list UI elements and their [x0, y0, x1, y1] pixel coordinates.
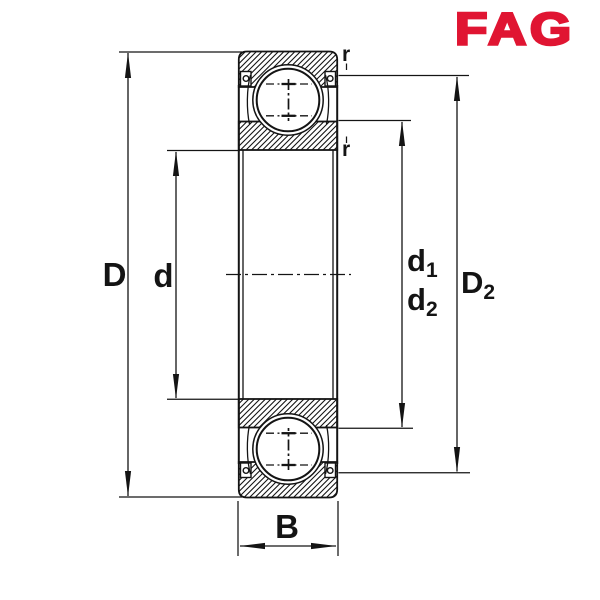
arrow-left-icon: [240, 543, 266, 549]
dim-d1-d2: d1 d2: [339, 121, 438, 429]
arrow-down-icon: [125, 471, 131, 497]
radius-labels: r r: [342, 43, 350, 161]
dim-d2-label: d2: [407, 282, 438, 321]
arrow-down-icon: [173, 374, 179, 399]
dim-d-label: d: [153, 257, 173, 294]
dim-D2-label: D2: [461, 265, 495, 304]
arrow-up-icon: [173, 151, 179, 176]
dim-D-label: D: [103, 256, 127, 293]
bearing-cross-section-diagram: D d d1 d2 D2: [0, 0, 600, 600]
dim-width-B: B: [238, 501, 338, 556]
bearing-top-section: [239, 52, 337, 151]
arrow-up-icon: [125, 53, 131, 79]
radius-label-outer: r: [342, 43, 350, 66]
fag-logo: FAG: [455, 4, 575, 54]
drawing-page: D d d1 d2 D2: [0, 0, 600, 600]
arrow-down-icon: [454, 447, 460, 472]
bearing-bottom-section: [239, 399, 337, 498]
dim-B-label: B: [275, 508, 299, 545]
arrow-up-icon: [454, 76, 460, 101]
dim-d1-label: d1: [407, 243, 438, 282]
arrow-right-icon: [311, 543, 337, 549]
arrow-down-icon: [399, 403, 405, 428]
arrow-up-icon: [399, 121, 405, 146]
